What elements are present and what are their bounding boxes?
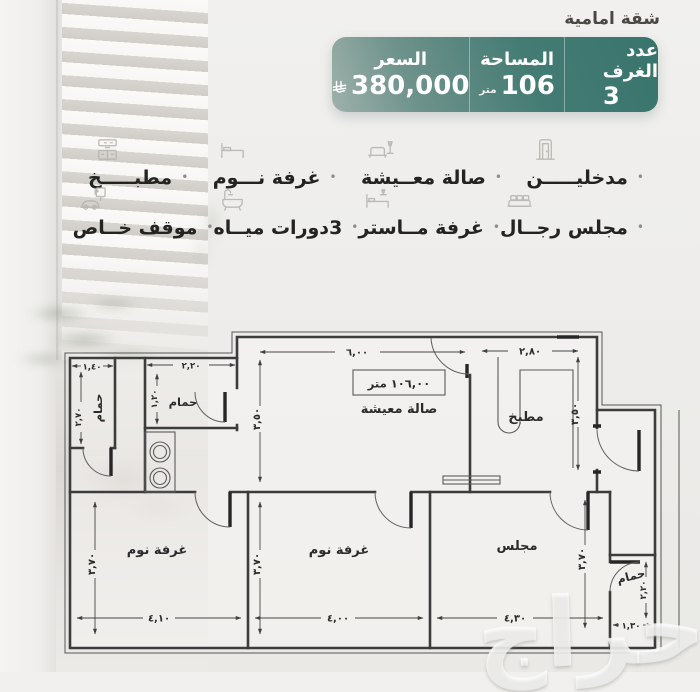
separator-dot: •: [351, 220, 358, 234]
rooms-value: 3: [603, 83, 620, 109]
dim-bath1-width: ١,٤٠: [83, 363, 102, 373]
bathtub-icon: [217, 186, 248, 213]
area-column: المساحة 106 متر: [470, 37, 564, 112]
separator-dot: •: [206, 220, 213, 234]
feature-majlis: • مجلس رجــال: [500, 186, 644, 239]
separator-dot: •: [495, 170, 502, 184]
car-parking-icon: P: [77, 186, 108, 213]
feature-row-1: • مدخليـــــن • صالة معــيشة • غرفة نـــ…: [88, 136, 644, 189]
master-bed-icon: [362, 186, 393, 213]
price-label: السعر: [374, 50, 427, 71]
feature-label: مجلس رجــال: [500, 217, 628, 239]
price-column: السعر 380,000: [332, 37, 470, 112]
svg-text:P: P: [94, 189, 99, 197]
dim-living-height: ٣,٥٠: [252, 408, 263, 430]
area-unit: متر: [479, 84, 496, 96]
price-value: 380,000: [351, 71, 469, 101]
area-value-row: 106 متر: [479, 71, 555, 101]
dim-kitchen-height: ٣,٥٠: [570, 403, 581, 425]
feature-parking: P • موقف خــاص: [73, 186, 214, 239]
apartment-type-tag: شقة امامية: [564, 9, 660, 29]
feature-living-room: • صالة معــيشة: [361, 136, 502, 189]
dim-bath2-width: ٢,٢٠: [182, 362, 201, 372]
feature-label: 3دورات ميــاه: [213, 217, 342, 239]
bath2-label: حمام: [169, 395, 198, 409]
dim-bath1-height: ٢,٧٠: [74, 408, 84, 427]
rooms-column: عدد الغرف 3: [565, 37, 658, 112]
bedroom2-label: غرفة نوم: [309, 543, 369, 558]
majlis-label: مجلس: [496, 539, 537, 554]
feature-entrances: • مدخليـــــن: [526, 136, 644, 189]
dim-bath3-width: ١,٣٠: [622, 622, 641, 632]
dim-majlis-width: ٤,٣٠: [504, 614, 526, 625]
feature-master-room: • غرفة مــاستر: [358, 186, 500, 239]
rooms-label: عدد الغرف: [565, 41, 658, 82]
dim-living-width: ٦,٠٠: [346, 348, 368, 359]
majlis-seating-icon: [504, 186, 535, 213]
feature-bedroom: • غرفة نـــوم: [213, 136, 337, 189]
bedroom1-label: غرفة نوم: [127, 543, 187, 558]
feature-label: غرفة مــاستر: [358, 217, 484, 239]
kitchen-cabinet-icon: [92, 136, 123, 163]
feature-bathrooms: • 3دورات ميــاه: [213, 186, 358, 239]
separator-dot: •: [493, 220, 500, 234]
dim-bed1-height: ٣,٧٠: [87, 553, 98, 575]
dim-bed2-height: ٣,٧٠: [252, 553, 263, 575]
kitchen-label: مطبخ: [508, 410, 543, 425]
dim-kitchen-width: ٢,٨٠: [519, 347, 541, 358]
sofa-lamp-icon: [365, 136, 396, 163]
area-value: 106: [501, 71, 555, 101]
area-box-label: ١٠٦,٠٠ متر: [367, 377, 430, 391]
saudi-riyal-icon: [332, 80, 347, 95]
separator-dot: •: [637, 220, 644, 234]
feature-kitchen: • مطبـــــخ: [88, 136, 188, 189]
listing-flyer: { "header": { "tag": "شقة امامية", "card…: [0, 0, 700, 672]
separator-dot: •: [330, 170, 337, 184]
separator-dot: •: [637, 170, 644, 184]
feature-label: موقف خــاص: [73, 217, 198, 239]
dim-majlis-height: ٣,٧٠: [577, 548, 588, 570]
feature-row-2: • مجلس رجــال • غرفة مــاستر • 3دورات مي…: [88, 186, 644, 239]
dim-bed2-width: ٤,٠٠: [327, 614, 349, 625]
bed-icon: [217, 136, 248, 163]
dim-bath2-height: ١,٢٠: [150, 390, 160, 409]
dim-bed1-width: ٤,١٠: [148, 614, 170, 625]
door-icon: [530, 136, 561, 163]
price-value-row: 380,000: [332, 71, 469, 101]
dim-bath3-height: ٢,٢٠: [639, 581, 649, 600]
floor-plan: ٦,٠٠ ٢,٨٠ ١,٤٠ ٢,٢٠ ٤,١٠ ٤,٠٠ ٤,٣٠ ١,٣٠ …: [45, 330, 685, 662]
area-label: المساحة: [480, 50, 554, 71]
floor-plan-drawing: ٦,٠٠ ٢,٨٠ ١,٤٠ ٢,٢٠ ٤,١٠ ٤,٠٠ ٤,٣٠ ١,٣٠ …: [45, 330, 685, 662]
summary-card: عدد الغرف 3 المساحة 106 متر السعر 380,00…: [332, 37, 658, 112]
separator-dot: •: [181, 170, 188, 184]
living-room-label: صالة معيشة: [361, 402, 438, 417]
bath1-label: حمام: [91, 394, 105, 423]
